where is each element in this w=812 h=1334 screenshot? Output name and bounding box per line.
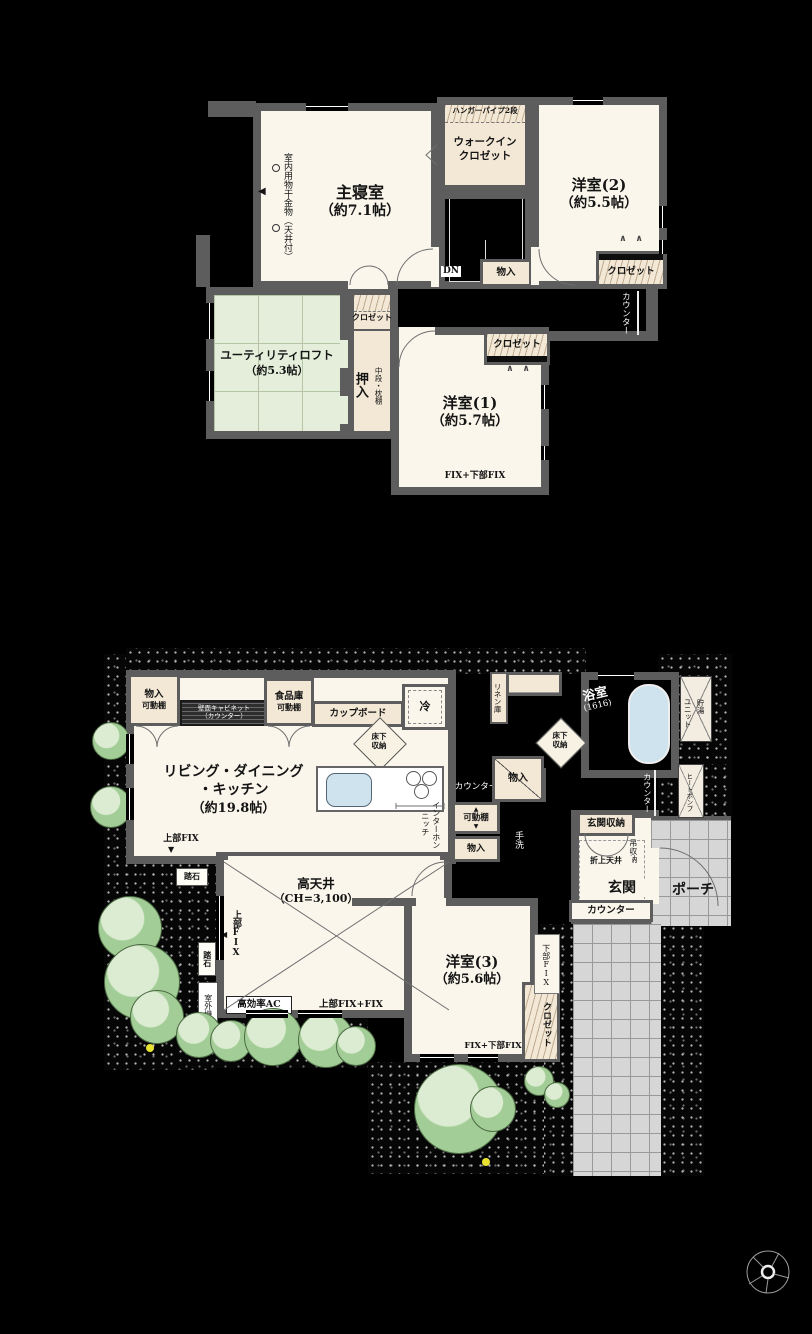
entrance-label: 玄関 (592, 880, 652, 897)
open-boundary (228, 856, 440, 870)
hook-icon (272, 224, 280, 232)
underfloor-label: 床下 収納 (361, 732, 397, 750)
tank-label-1: 貯湯 (696, 684, 705, 728)
underfloor-label: 床下 収納 (543, 731, 577, 749)
door-opening (651, 848, 659, 904)
ldk-name-1: リビング・ダイニング (146, 764, 321, 781)
counter-line-wash (654, 770, 656, 816)
master-bedroom-size: （約7.1帖） (300, 203, 420, 220)
ldk-name-2: ・キッチン (146, 782, 321, 799)
door-opening (399, 327, 435, 335)
closet-hatch-oshiire (354, 295, 390, 312)
walkway (573, 924, 661, 1176)
yoshitsu1-name: 洋室(1) (400, 394, 540, 412)
upper-fix-label: 上部FIX (150, 834, 212, 845)
gravel-area (456, 648, 586, 674)
door-opening (348, 281, 388, 289)
window (420, 1054, 454, 1062)
door-opening (416, 898, 446, 906)
linen-shelf (506, 672, 562, 696)
room-utility-loft (206, 287, 348, 439)
intercom-niche-2: ニッチ (420, 806, 430, 842)
garden-light (146, 1044, 154, 1052)
gravel-area (126, 648, 460, 672)
storage-kitchen: 物入 可動棚 (128, 674, 180, 726)
storage-stair-2f: 物入 (480, 259, 532, 287)
utility-loft-name: ユーティリティロフト (210, 348, 344, 362)
closet-yoshitsu1: クロゼット (484, 331, 550, 365)
yoshitsu3-size: （約5.6帖） (412, 972, 532, 988)
high-ceiling-label-2: （CH=3,100） (256, 892, 376, 905)
tree (92, 722, 130, 760)
down-marker-icon: ▼ (168, 845, 174, 855)
fold-door-marks: ∧ ∧ (598, 234, 664, 245)
stove-burner (414, 784, 429, 799)
tank-label-2: ユニット (683, 686, 692, 740)
bathtub (628, 684, 670, 764)
wall-hall-2f (549, 331, 658, 341)
coffered-label: 折上天井 (580, 856, 632, 866)
window (573, 97, 603, 105)
fix-lower-label-2f: FIX+下部FIX (420, 471, 530, 482)
porch-label: ポーチ (662, 882, 724, 899)
fold-door-marks: ∧ ∧ (488, 364, 548, 375)
yoshitsu2-size: （約5.5帖） (538, 195, 660, 211)
yoshitsu3-name: 洋室(3) (412, 954, 532, 972)
pantry: 食品庫 可動棚 (264, 678, 314, 726)
closet-oshiire-top: クロゼット (346, 313, 398, 323)
gravel-area (702, 764, 732, 824)
window (541, 446, 549, 460)
porch (651, 816, 731, 926)
yoshitsu1-size: （約5.7帖） (400, 413, 540, 429)
tree (470, 1086, 516, 1132)
lower-fix-label: 下部FIX (541, 940, 551, 990)
window (206, 303, 214, 339)
window (216, 896, 224, 960)
stairs-down-label: DN (441, 266, 461, 277)
upper-fix-vertical: 上部FIX (230, 906, 241, 962)
oshiire-label: 押入 (352, 352, 368, 418)
door-opening (340, 340, 348, 368)
window (126, 788, 134, 820)
entry-counter: カウンター (569, 900, 653, 922)
wall-cabinet-strip: 壁面キャビネット （カウンター） (180, 700, 268, 726)
wic-label-2: クロゼット (441, 150, 529, 163)
cupboard: カップボード (312, 701, 404, 727)
garden-light (482, 1158, 490, 1166)
movable-shelf: ▲ 可動棚 ▼ (452, 802, 500, 834)
entry-storage: 玄関収納 (577, 812, 635, 836)
tree (336, 1026, 376, 1066)
step-stone-2: 踏石 (198, 942, 216, 976)
window (659, 240, 667, 254)
window (659, 206, 667, 228)
window (598, 672, 634, 680)
handwash-label: 手洗 (512, 822, 523, 858)
hook-icon (272, 164, 280, 172)
floor-plan-canvas: ハンガーパイプ2段 ウォークイン クロゼット 主寝室 （約7.1帖） 室内用物干… (0, 0, 812, 1334)
storage-washroom: 物入 (492, 756, 544, 802)
storage-hall: 物入 (452, 836, 500, 862)
counter-line-2f (637, 291, 639, 335)
ldk-size: （約19.8帖） (146, 801, 321, 817)
linen-label: リネン庫 (493, 676, 502, 720)
tree (544, 1082, 570, 1108)
kitchen-sink (326, 773, 372, 807)
master-bedroom-name: 主寝室 (300, 183, 420, 203)
window (306, 103, 348, 111)
window (206, 371, 214, 401)
closet-yoshitsu2: クロゼット (596, 251, 666, 287)
wall-stub (208, 101, 256, 117)
yoshitsu2-name: 洋室(2) (538, 176, 660, 194)
window (298, 1010, 342, 1018)
indoor-drying-label: 室内用物干金物（天井付） (281, 142, 292, 272)
door-opening (531, 247, 539, 285)
compass-icon (747, 1251, 789, 1293)
window (468, 1054, 498, 1062)
wall-stub (196, 235, 210, 287)
closet-yoshitsu3-label: クロゼット (540, 992, 551, 1056)
wic-label-1: ウォークイン (441, 136, 529, 149)
intercom-niche-1: インターホン (431, 792, 441, 858)
gravel-area (660, 924, 704, 1176)
window (541, 385, 549, 409)
left-marker-icon: ◀ (258, 186, 266, 198)
step-stone-1: 踏石 (176, 868, 208, 886)
heatpump-label: ヒートポンプ (684, 768, 692, 816)
window (246, 1010, 288, 1018)
fridge-dashes (408, 690, 442, 724)
door-opening (431, 247, 439, 287)
high-ceiling-label-1: 高天井 (256, 876, 376, 891)
window (126, 734, 134, 764)
hanger-pipe-label: ハンガーパイプ2段 (443, 106, 527, 115)
utility-loft-size: （約5.3帖） (210, 364, 344, 377)
counter-label-2f: カウンター (620, 288, 630, 338)
chudan-label: 中段・枕棚 (374, 344, 383, 428)
divider (354, 329, 390, 331)
upper-fix-fix-label: 上部FIX+FIX (296, 999, 406, 1011)
refrigerator: 冷 (402, 684, 448, 730)
door-opening (340, 396, 348, 424)
counter-label-wash: カウンター (642, 768, 652, 818)
